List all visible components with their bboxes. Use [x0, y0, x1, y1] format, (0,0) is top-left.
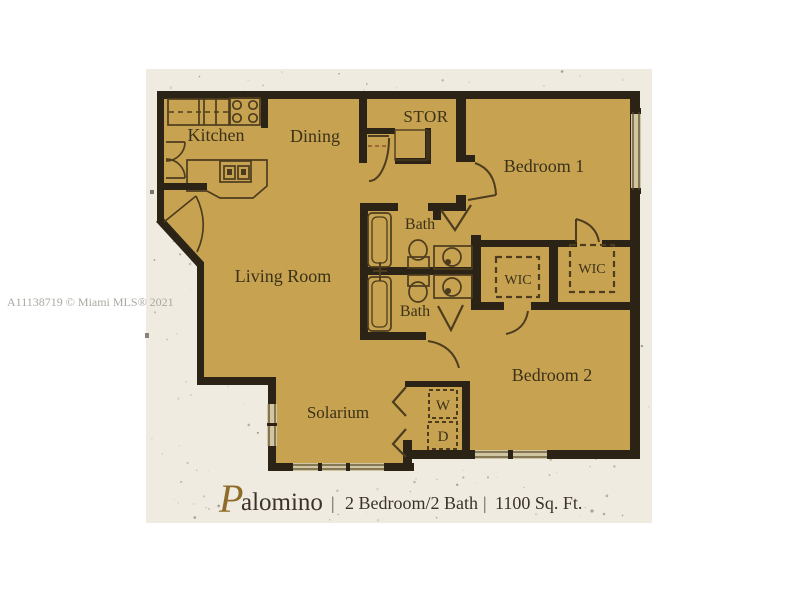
- svg-text:Bath: Bath: [400, 303, 430, 320]
- svg-text:WIC: WIC: [578, 262, 605, 277]
- svg-text:Solarium: Solarium: [307, 403, 369, 422]
- svg-text:STOR: STOR: [403, 107, 448, 126]
- svg-text:Kitchen: Kitchen: [188, 125, 245, 145]
- svg-text:|: |: [331, 493, 335, 513]
- svg-text:Dining: Dining: [290, 126, 340, 146]
- svg-text:Bath: Bath: [405, 216, 435, 233]
- svg-text:2 Bedroom/2 Bath: 2 Bedroom/2 Bath: [345, 493, 478, 513]
- svg-text:alomino: alomino: [241, 489, 323, 516]
- svg-text:1100 Sq. Ft.: 1100 Sq. Ft.: [495, 493, 582, 513]
- svg-text:D: D: [438, 429, 449, 445]
- svg-text:Living Room: Living Room: [235, 266, 332, 286]
- svg-text:W: W: [436, 398, 451, 414]
- svg-text:Bedroom 2: Bedroom 2: [512, 365, 593, 385]
- svg-text:Bedroom 1: Bedroom 1: [504, 156, 585, 176]
- svg-text:A11138719 © Miami MLS® 2021: A11138719 © Miami MLS® 2021: [7, 295, 174, 309]
- svg-text:P: P: [218, 476, 243, 521]
- svg-text:|: |: [483, 493, 487, 513]
- svg-text:WIC: WIC: [504, 273, 531, 288]
